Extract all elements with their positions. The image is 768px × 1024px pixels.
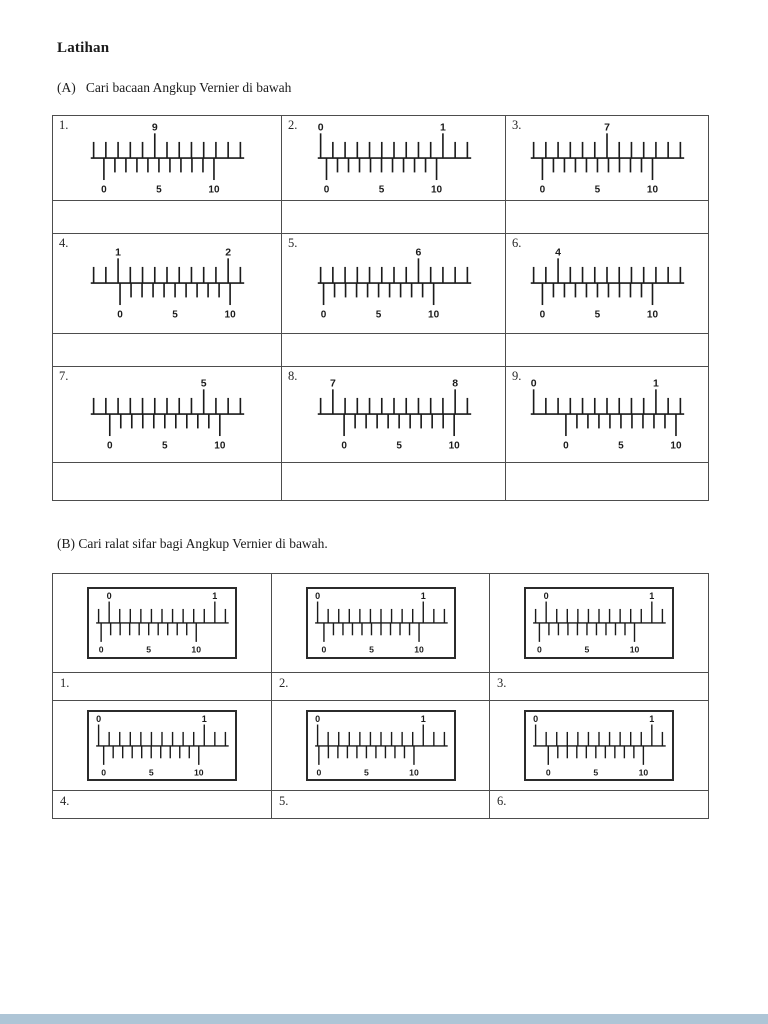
diagram-frame: 010510 [87,587,237,659]
vernier-scale-label: 5 [618,441,624,452]
answer-a-cell-2 [282,201,506,234]
exercise-b-diagram-cell-6: 010510 [490,701,709,791]
diagram-area: 010510 [272,574,489,672]
question-number: 2. [288,118,297,133]
question-number: 5. [272,791,489,809]
vernier-scale-label: 5 [162,441,168,452]
vernier-scale-label: 0 [316,767,321,777]
table-b-zero-error: 0105100105100105101.2.3.0105100105100105… [52,573,709,819]
main-scale-label: 0 [531,379,537,390]
section-a-heading: (A) Cari bacaan Angkup Vernier di bawah [57,80,291,96]
exercise-a-cell-5: 5.60510 [282,234,506,334]
answer-b-cell-6: 6. [490,791,709,819]
question-number: 6. [512,236,521,251]
vernier-scale-label: 10 [639,767,649,777]
answer-b-cell-5: 5. [272,791,490,819]
vernier-scale-label: 5 [146,645,151,655]
main-scale-label: 5 [201,379,207,390]
vernier-scale-label: 10 [647,184,659,195]
vernier-scale-label: 5 [149,767,154,777]
answer-a-cell-6 [506,334,709,367]
main-scale-label: 7 [604,122,610,133]
main-scale-label: 1 [653,379,659,390]
vernier-scale-label: 0 [540,184,546,195]
vernier-scale-diagram: 010510 [311,713,451,779]
bottom-accent-bar [0,1014,768,1024]
diagram-area: 60510 [282,234,505,333]
answer-b-cell-1: 1. [53,673,272,701]
vernier-scale-label: 5 [364,767,369,777]
answer-a-cell-8 [282,463,506,501]
main-scale-label: 0 [315,714,320,724]
table-a-readings: 1.905102.0105103.705104.1205105.605106.4… [52,115,709,501]
main-scale-label: 1 [649,591,654,601]
exercise-b-diagram-cell-4: 010510 [53,701,272,791]
vernier-scale-label: 5 [156,184,162,195]
main-scale-label: 4 [555,248,561,259]
main-scale-label: 7 [329,379,335,390]
diagram-frame: 010510 [306,587,456,659]
vernier-scale-label: 10 [225,310,237,321]
main-scale-label: 0 [315,591,320,601]
vernier-scale-label: 5 [369,645,374,655]
diagram-frame: 010510 [524,710,674,782]
main-scale-label: 1 [420,591,425,601]
main-scale-label: 6 [415,248,421,259]
vernier-scale-diagram: 010510 [313,120,475,196]
exercise-b-diagram-cell-2: 010510 [272,574,490,673]
main-scale-label: 0 [533,714,538,724]
vernier-scale-label: 0 [540,310,546,321]
vernier-scale-label: 10 [194,767,204,777]
question-number: 3. [512,118,521,133]
vernier-scale-diagram: 60510 [313,245,475,321]
diagram-area: 780510 [282,367,505,462]
main-scale-label: 9 [152,122,158,133]
answer-b-cell-2: 2. [272,673,490,701]
vernier-scale-label: 0 [101,767,106,777]
vernier-scale-label: 5 [378,184,384,195]
vernier-scale-diagram: 70510 [526,120,688,196]
diagram-area: 90510 [53,116,281,200]
vernier-scale-diagram: 120510 [86,245,248,321]
vernier-scale-label: 0 [323,184,329,195]
vernier-scale-diagram: 780510 [313,376,475,452]
exercise-a-cell-1: 1.90510 [53,116,282,201]
page-title: Latihan [57,40,109,57]
vernier-scale-diagram: 010510 [526,376,688,452]
diagram-area: 40510 [506,234,708,333]
diagram-frame: 010510 [87,710,237,782]
question-number: 2. [272,673,489,691]
diagram-area: 010510 [282,116,505,200]
worksheet-page: Latihan (A) Cari bacaan Angkup Vernier d… [0,0,768,1024]
vernier-scale-label: 0 [321,645,326,655]
vernier-scale-label: 10 [191,645,201,655]
diagram-area: 010510 [53,701,271,790]
main-scale-label: 0 [544,591,549,601]
main-scale-label: 8 [452,379,458,390]
exercise-b-diagram-cell-1: 010510 [53,574,272,673]
vernier-scale-label: 5 [375,310,381,321]
answer-a-cell-1 [53,201,282,234]
diagram-area: 010510 [53,574,271,672]
main-scale-label: 2 [225,248,231,259]
vernier-scale-label: 5 [172,310,178,321]
answer-a-cell-9 [506,463,709,501]
diagram-area: 010510 [490,574,708,672]
main-scale-label: 1 [420,714,425,724]
question-number: 6. [490,791,708,809]
vernier-scale-label: 0 [107,441,113,452]
vernier-scale-diagram: 010510 [311,590,451,656]
main-scale-label: 0 [317,122,323,133]
vernier-scale-label: 0 [546,767,551,777]
vernier-scale-label: 10 [414,645,424,655]
vernier-scale-label: 0 [341,441,347,452]
vernier-scale-label: 5 [593,767,598,777]
vernier-scale-diagram: 50510 [86,376,248,452]
diagram-frame: 010510 [524,587,674,659]
vernier-scale-label: 10 [428,310,440,321]
question-number: 3. [490,673,708,691]
vernier-scale-label: 5 [585,645,590,655]
vernier-scale-diagram: 40510 [526,245,688,321]
main-scale-label: 0 [96,714,101,724]
question-number: 7. [59,369,68,384]
vernier-scale-label: 10 [630,645,640,655]
main-scale-label: 1 [202,714,207,724]
question-number: 1. [53,673,271,691]
main-scale-label: 1 [440,122,446,133]
main-scale-label: 1 [115,248,121,259]
answer-b-cell-4: 4. [53,791,272,819]
vernier-scale-label: 0 [101,184,107,195]
vernier-scale-label: 5 [595,310,601,321]
answer-b-cell-3: 3. [490,673,709,701]
vernier-scale-label: 0 [563,441,569,452]
main-scale-label: 0 [107,591,112,601]
diagram-area: 50510 [53,367,281,462]
main-scale-label: 1 [649,714,654,724]
exercise-a-cell-4: 4.120510 [53,234,282,334]
vernier-scale-label: 10 [409,767,419,777]
answer-a-cell-5 [282,334,506,367]
exercise-a-cell-6: 6.40510 [506,234,709,334]
vernier-scale-label: 10 [208,184,220,195]
question-number: 4. [53,791,271,809]
diagram-area: 120510 [53,234,281,333]
vernier-scale-label: 0 [537,645,542,655]
vernier-scale-label: 0 [320,310,326,321]
main-scale-label: 1 [212,591,217,601]
vernier-scale-label: 10 [214,441,226,452]
vernier-scale-label: 10 [647,310,659,321]
exercise-a-cell-8: 8.780510 [282,367,506,463]
diagram-area: 010510 [506,367,708,462]
vernier-scale-label: 0 [99,645,104,655]
diagram-frame: 010510 [306,710,456,782]
vernier-scale-label: 10 [670,441,682,452]
vernier-scale-label: 10 [448,441,460,452]
vernier-scale-diagram: 010510 [92,713,232,779]
vernier-scale-label: 5 [595,184,601,195]
answer-a-cell-7 [53,463,282,501]
question-number: 5. [288,236,297,251]
exercise-a-cell-2: 2.010510 [282,116,506,201]
diagram-area: 010510 [490,701,708,790]
section-b-heading: (B) Cari ralat sifar bagi Angkup Vernier… [57,536,328,552]
exercise-a-cell-9: 9.010510 [506,367,709,463]
vernier-scale-label: 0 [117,310,123,321]
vernier-scale-diagram: 010510 [529,713,669,779]
vernier-scale-diagram: 90510 [86,120,248,196]
exercise-b-diagram-cell-5: 010510 [272,701,490,791]
exercise-a-cell-3: 3.70510 [506,116,709,201]
vernier-scale-label: 5 [396,441,402,452]
question-number: 4. [59,236,68,251]
vernier-scale-label: 10 [430,184,442,195]
question-number: 9. [512,369,521,384]
exercise-b-diagram-cell-3: 010510 [490,574,709,673]
answer-a-cell-4 [53,334,282,367]
diagram-area: 70510 [506,116,708,200]
diagram-area: 010510 [272,701,489,790]
question-number: 1. [59,118,68,133]
answer-a-cell-3 [506,201,709,234]
exercise-a-cell-7: 7.50510 [53,367,282,463]
vernier-scale-diagram: 010510 [529,590,669,656]
question-number: 8. [288,369,297,384]
vernier-scale-diagram: 010510 [92,590,232,656]
